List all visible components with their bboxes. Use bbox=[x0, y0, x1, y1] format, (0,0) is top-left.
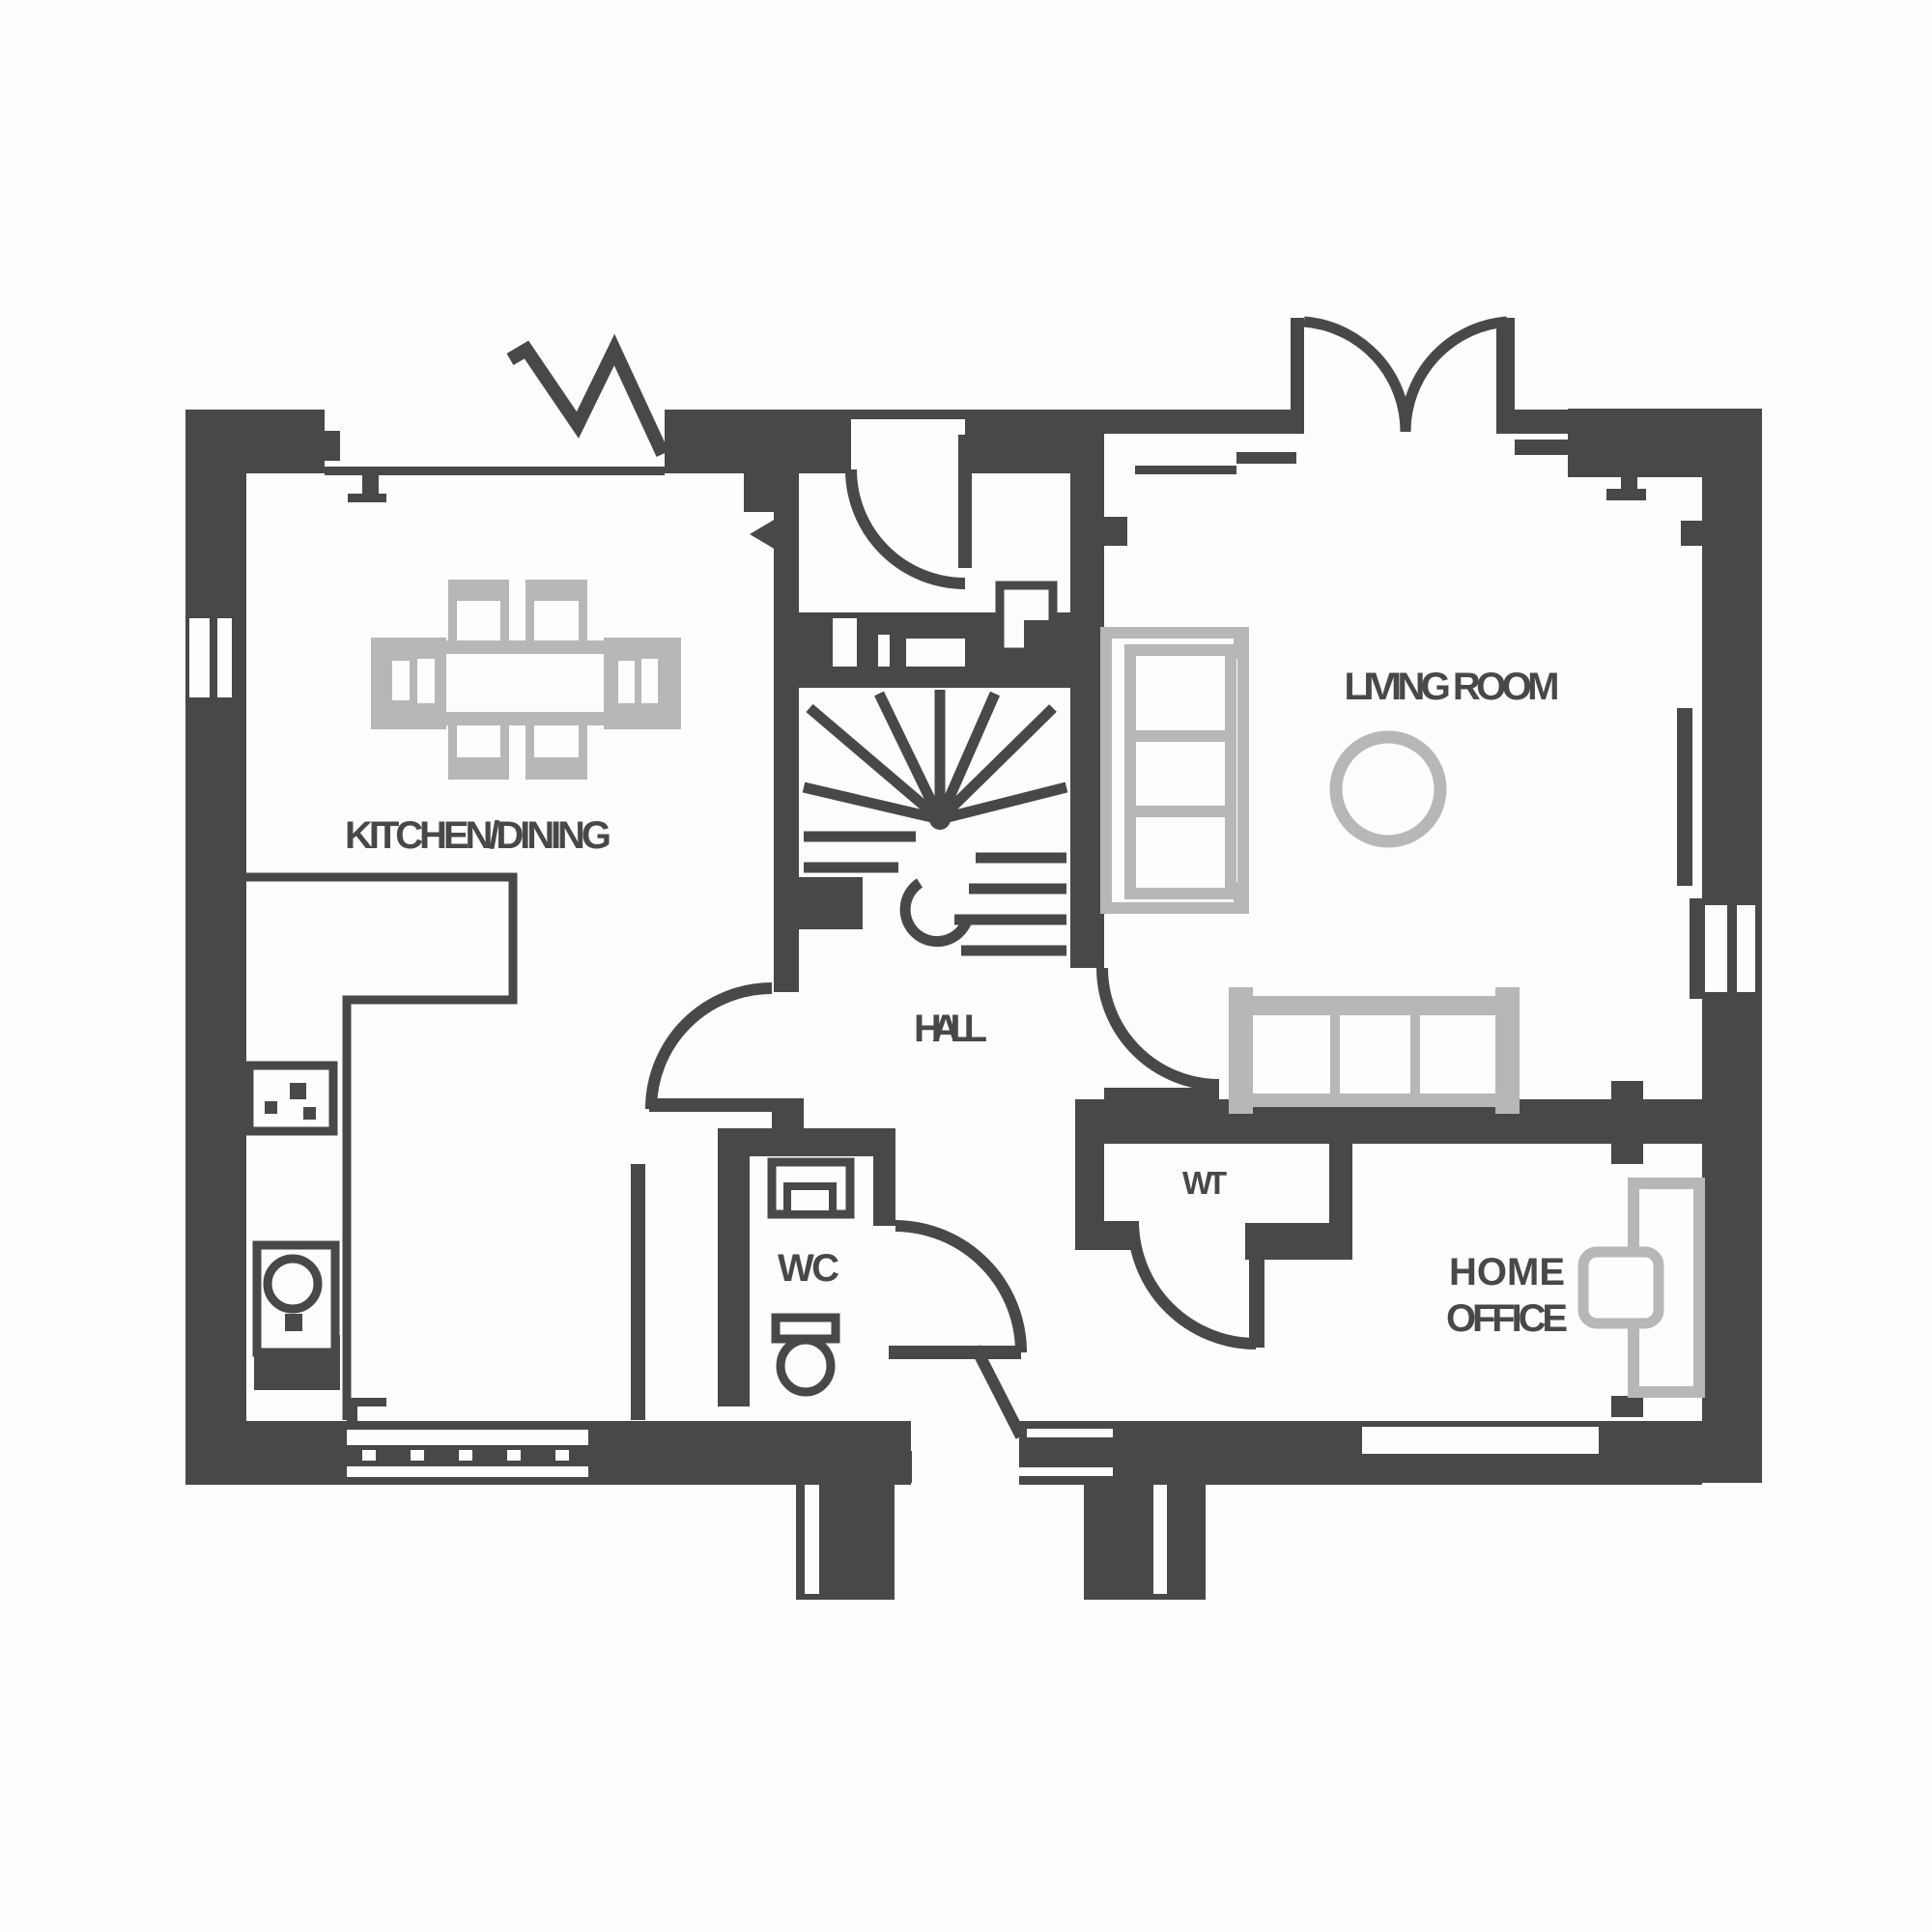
svg-text:OFFICE: OFFICE bbox=[1446, 1297, 1568, 1340]
svg-text:WC: WC bbox=[778, 1247, 839, 1290]
svg-text:HOME: HOME bbox=[1449, 1251, 1565, 1293]
svg-text:LIVING ROOM: LIVING ROOM bbox=[1345, 666, 1560, 708]
svg-text:HALL: HALL bbox=[914, 1008, 987, 1050]
svg-text:KITCHEN/DINING: KITCHEN/DINING bbox=[345, 814, 611, 857]
svg-text:WT: WT bbox=[1182, 1165, 1227, 1201]
